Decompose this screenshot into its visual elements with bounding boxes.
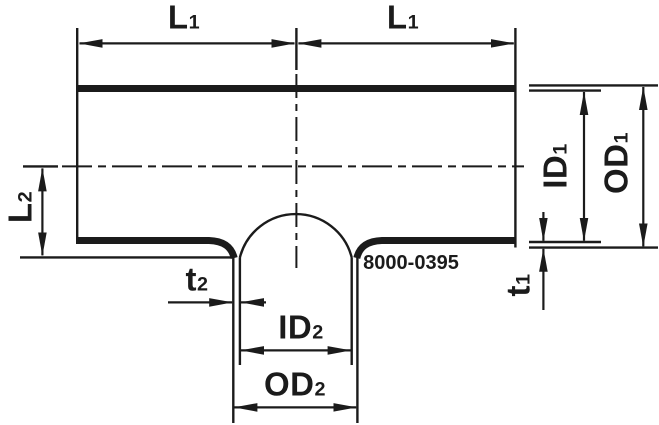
dim-label-id1: ID1: [539, 143, 572, 189]
drawing-linework: [0, 0, 659, 425]
l1-left-sub: 1: [189, 12, 201, 34]
l1-left-base: L: [168, 0, 189, 36]
id1-sub: 1: [550, 143, 572, 155]
l1-right-sub: 1: [408, 12, 420, 34]
dim-label-od1: OD1: [600, 132, 633, 194]
id2-base: ID: [278, 309, 312, 346]
dim-label-l2: L2: [4, 191, 37, 223]
dim-label-t1: t1: [502, 273, 535, 296]
od2-base: OD: [264, 366, 315, 403]
dim-label-l1-left: L1: [168, 1, 200, 34]
dimension-lines: [42, 43, 643, 407]
dim-label-t2: t2: [185, 263, 208, 296]
pipe-bottom-wall-left-flare: [77, 241, 234, 259]
id1-base: ID: [537, 155, 574, 189]
part-number: 8000-0395: [363, 253, 459, 273]
id2-sub: 2: [312, 322, 324, 344]
od1-sub: 1: [611, 132, 633, 144]
od1-base: OD: [598, 144, 635, 195]
centerlines: [62, 28, 524, 268]
dim-label-id2: ID2: [278, 311, 324, 344]
tee-fitting-drawing: L1 L1 L2 ID1 OD1 t1 t2 ID2 OD2 8000-0395: [0, 0, 659, 425]
t2-sub: 2: [197, 274, 209, 296]
t1-base: t: [500, 285, 537, 297]
l2-sub: 2: [15, 191, 37, 203]
od2-sub: 2: [314, 379, 326, 401]
dim-label-l1-right: L1: [387, 1, 419, 34]
t2-base: t: [185, 261, 197, 298]
t1-sub: 1: [513, 273, 535, 285]
dim-label-od2: OD2: [264, 368, 326, 401]
l2-base: L: [2, 202, 39, 223]
l1-right-base: L: [387, 0, 408, 36]
